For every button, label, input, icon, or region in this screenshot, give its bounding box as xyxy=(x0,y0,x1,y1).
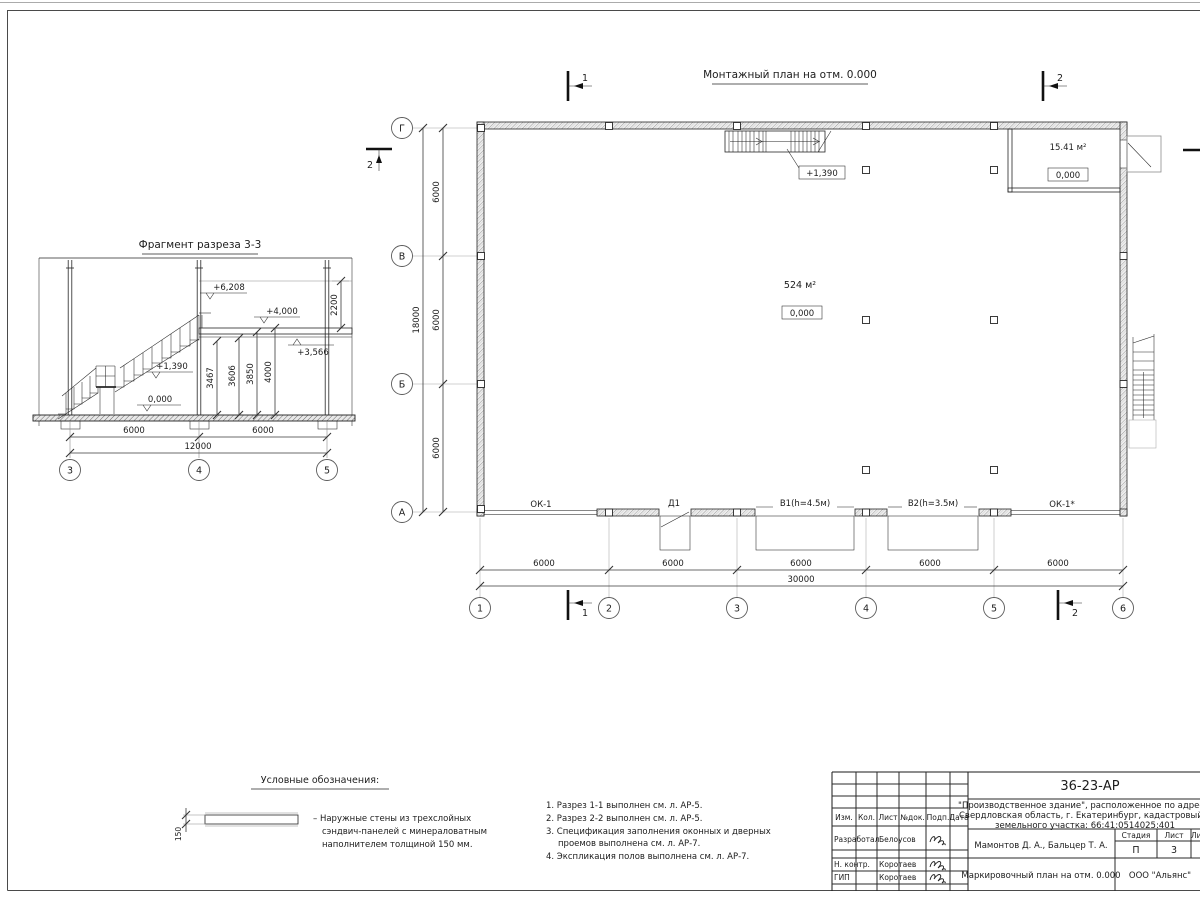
grid-bubbles: Г В Б А 1 2 3 4 5 6 xyxy=(392,118,1134,619)
section-mark-label: 1 xyxy=(582,608,588,619)
grid-bubble-label: А xyxy=(399,508,406,519)
room-area-label: 15.41 м² xyxy=(1050,143,1087,153)
tb-sheet-title: Маркировочный план на отм. 0.000 xyxy=(961,871,1120,881)
gate-v2-recess xyxy=(888,516,978,550)
dim-label: 6000 xyxy=(533,559,555,569)
tb-doc-number: 36-23-АР xyxy=(1060,779,1119,794)
hall-area-label: 524 м² xyxy=(784,280,816,291)
hall-elevation-label: 0,000 xyxy=(790,309,814,319)
tb-sheets-header: Листов xyxy=(1191,831,1200,840)
legend-wall-symbol xyxy=(205,815,298,824)
dim-label: 6000 xyxy=(123,426,145,436)
elevation-label: +1,390 xyxy=(156,362,187,372)
footing xyxy=(190,421,209,429)
tb-authors: Мамонтов Д. А., Бальцер Т. А. xyxy=(974,841,1107,851)
grid-bubble-label: 3 xyxy=(67,466,73,477)
dim-label: 2200 xyxy=(330,294,340,316)
opening-label: Д1 xyxy=(668,499,680,509)
note-line: 1. Разрез 1-1 выполнен см. л. АР-5. xyxy=(546,801,703,811)
section-mark-label: 1 xyxy=(582,73,588,84)
grid-bubble-label: 3 xyxy=(734,604,740,615)
plan-title: Монтажный план на отм. 0.000 xyxy=(703,69,877,81)
section-fragment: Фрагмент разреза 3-3 +6,208 xyxy=(33,239,355,481)
opening-label: В1(h=4.5м) xyxy=(780,499,830,509)
elevation-label: +6,208 xyxy=(213,283,244,293)
grid-bubble-label: Б xyxy=(399,380,406,391)
elevation-label: +3,566 xyxy=(297,348,328,358)
legend: Условные обозначения: 150 – Наружные сте… xyxy=(174,775,487,850)
elevation-label: +4,000 xyxy=(266,307,297,317)
note-line: 3. Спецификация заполнения оконных и две… xyxy=(546,827,771,837)
elevation-label: 0,000 xyxy=(148,395,172,405)
dim-label: 6000 xyxy=(919,559,941,569)
dim-label: 4000 xyxy=(264,361,274,383)
tb-sheet-header: Лист xyxy=(1164,831,1184,840)
ground-line xyxy=(33,415,355,421)
grid-bubble-label: Г xyxy=(399,124,405,135)
legend-text: – Наружные стены из трехслойных xyxy=(313,814,471,824)
tb-sheet-value: 3 xyxy=(1171,845,1177,856)
grid-bubble-label: В xyxy=(399,252,406,263)
signature xyxy=(930,837,945,845)
dim-label: 6000 xyxy=(790,559,812,569)
legend-title: Условные обозначения: xyxy=(261,775,379,786)
dim-label: 6000 xyxy=(432,437,442,459)
exterior-stair xyxy=(1129,334,1156,448)
door-d1-leaf xyxy=(661,512,689,527)
wall-left xyxy=(477,122,484,516)
grid-bubble-label: 4 xyxy=(863,604,869,615)
grid-bubble-label: 4 xyxy=(196,466,202,477)
opening-label: ОК-1 xyxy=(530,500,551,510)
room-wall xyxy=(1008,129,1012,192)
drawing-frame xyxy=(0,3,1200,891)
legend-dim-label: 150 xyxy=(174,827,183,842)
tb-role: Разработал xyxy=(834,835,880,844)
room-elevation-label: 0,000 xyxy=(1056,171,1080,181)
room-wall xyxy=(1008,188,1120,192)
plan-dims-left: 6000 6000 6000 18000 xyxy=(412,124,447,516)
grid-bubble-label: 6 xyxy=(1120,604,1126,615)
grid-bubble-label: 2 xyxy=(606,604,612,615)
tb-project-line: земельного участка: 66:41:0514025:401 xyxy=(995,821,1175,831)
wall-bottom-segment xyxy=(691,509,755,516)
dim-label: 3467 xyxy=(206,367,216,389)
tb-col-header: №док. xyxy=(900,813,925,822)
note-line: 4. Экспликация полов выполнена см. л. АР… xyxy=(546,852,749,862)
dim-label: 3850 xyxy=(246,363,256,385)
tb-col-header: Лист xyxy=(878,813,898,822)
tb-col-header: Изм. xyxy=(835,813,853,822)
footing xyxy=(318,421,337,429)
tb-name: Коротаев xyxy=(879,873,916,882)
dim-total-label: 18000 xyxy=(412,306,422,333)
dim-label: 6000 xyxy=(432,181,442,203)
dim-label: 6000 xyxy=(662,559,684,569)
grid-bubble-label: 5 xyxy=(324,466,330,477)
wall-openings: ОК-1 Д1 В1(h=4.5м) В2(h=3.5м) ОК-1* xyxy=(484,499,1120,550)
plan-dims-bottom: 6000 6000 6000 6000 6000 30000 xyxy=(476,559,1127,590)
grid-bubble-label: 5 xyxy=(991,604,997,615)
section-title: Фрагмент разреза 3-3 xyxy=(139,239,262,251)
tb-col-header: Подп. xyxy=(927,813,950,822)
window-ok1 xyxy=(484,511,597,515)
blueprint-page: Монтажный план на отм. 0.000 ОК xyxy=(0,0,1200,900)
tb-stage-header: Стадия xyxy=(1122,831,1151,840)
tb-col-header: Кол. xyxy=(858,813,875,822)
dim-total-label: 12000 xyxy=(184,442,211,452)
tb-name: Коротаев xyxy=(879,860,916,869)
interior-room: 15.41 м² 0,000 xyxy=(1008,129,1161,192)
room-door-leaf xyxy=(1128,143,1151,167)
dim-label: 6000 xyxy=(432,309,442,331)
interior-stair: +1,390 xyxy=(725,131,845,179)
section-mark-label: 2 xyxy=(1057,73,1063,84)
floor-plan: Монтажный план на отм. 0.000 ОК xyxy=(366,69,1200,620)
note-line: 2. Разрез 2-2 выполнен см. л. АР-5. xyxy=(546,814,703,824)
grid-lines xyxy=(413,128,1123,597)
section-columns xyxy=(66,260,331,415)
window-ok1-star xyxy=(1011,511,1120,515)
title-block: Изм. Кол. Лист №док. Подп. Дата Разработ… xyxy=(832,772,1200,891)
gate-v1-recess xyxy=(756,516,854,550)
section-bdims: 6000 6000 12000 3 4 5 xyxy=(60,421,338,481)
legend-text: сэндвич-панелей с минераловатным xyxy=(322,827,487,837)
blueprint-canvas: Монтажный план на отм. 0.000 ОК xyxy=(0,0,1200,900)
exterior-landing xyxy=(1127,136,1161,172)
tb-role: Н. контр. xyxy=(834,860,870,869)
dim-label: 3606 xyxy=(228,365,238,387)
wall-corner xyxy=(1120,509,1127,516)
dim-total-label: 30000 xyxy=(787,575,814,585)
stair-elevation-label: +1,390 xyxy=(806,169,837,179)
section-mark-label: 2 xyxy=(1072,608,1078,619)
tb-stage-value: П xyxy=(1132,845,1139,856)
dim-label: 6000 xyxy=(1047,559,1069,569)
section-marks: 1 2 1 2 2 xyxy=(366,71,1200,620)
opening-label: В2(h=3.5м) xyxy=(908,499,958,509)
legend-text: наполнителем толщиной 150 мм. xyxy=(322,840,473,850)
dim-label: 6000 xyxy=(252,426,274,436)
tb-project-line: "Производственное здание", расположенное… xyxy=(958,801,1200,811)
tb-role: ГИП xyxy=(834,873,850,882)
section-mark-label: 2 xyxy=(367,160,373,171)
wall-top xyxy=(477,122,1127,129)
room-door-opening xyxy=(1121,140,1127,168)
elevation-marks: +6,208 +4,000 +3,566 +1,390 0,000 xyxy=(137,283,334,411)
note-line: проемов выполнена см. л. АР-7. xyxy=(558,839,700,849)
signature xyxy=(930,875,945,883)
door-d1-recess xyxy=(660,516,690,550)
wall-right xyxy=(1120,122,1127,516)
opening-label: ОК-1* xyxy=(1049,500,1074,510)
tb-project-line: Свердловская область, г. Екатеринбург, к… xyxy=(959,811,1200,821)
grid-bubble-label: 1 xyxy=(477,604,483,615)
notes: 1. Разрез 1-1 выполнен см. л. АР-5. 2. Р… xyxy=(546,801,771,862)
footing xyxy=(61,421,80,429)
tb-name: Белоусов xyxy=(879,835,916,844)
signature xyxy=(930,862,945,870)
tb-company: ООО "Альянс" xyxy=(1129,871,1191,881)
wall-bottom-segment xyxy=(855,509,887,516)
